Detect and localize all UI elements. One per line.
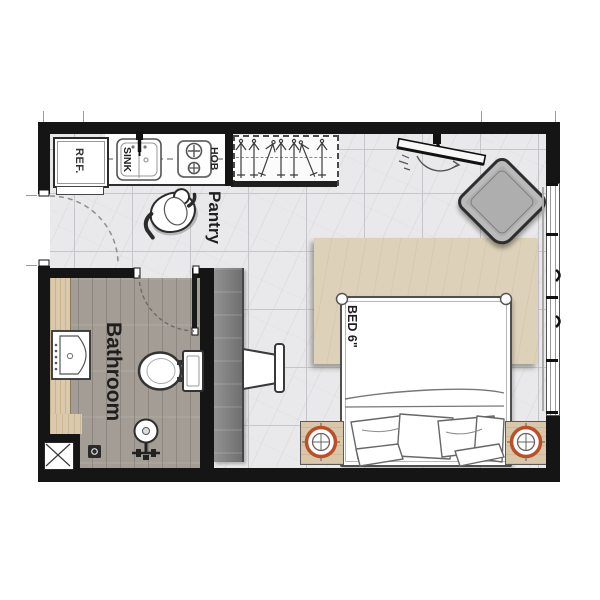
wall-top [38, 122, 560, 134]
bathroom-wall [200, 268, 214, 468]
hob-label: HOB [206, 141, 222, 177]
wardrobe-rail [236, 157, 332, 158]
wall-pier [225, 134, 233, 186]
wall-bottom [38, 468, 560, 482]
window-mullion [546, 296, 558, 299]
window-icon [546, 183, 560, 416]
floor-plan: REF. SINK HOB Pantry Bathroom BED 6" [0, 0, 600, 600]
pantry-label: Pantry [203, 184, 225, 250]
wall-right [546, 411, 560, 482]
bathroom-wall [50, 268, 138, 278]
dimension-tick [26, 195, 37, 196]
dimension-tick [555, 111, 556, 122]
refrigerator-label: REF. [53, 137, 105, 184]
bed-icon [340, 296, 512, 467]
nightstand-lamp-icon [300, 421, 344, 465]
bathroom-label: Bathroom [100, 324, 126, 419]
window-mullion [546, 411, 558, 414]
dimension-tick [481, 111, 482, 122]
dimension-tick [43, 111, 44, 122]
dimension-tick [26, 265, 37, 266]
desk-counter [214, 268, 244, 462]
sink-label: SINK [118, 139, 136, 181]
wall-left [38, 122, 50, 194]
wall-right [546, 122, 560, 186]
bathroom-door-leaf [192, 272, 197, 332]
nightstand-lamp-icon [505, 421, 549, 465]
wardrobe-front-edge [231, 181, 337, 187]
dimension-tick [83, 111, 84, 122]
service-shaft-icon [44, 442, 74, 470]
window-mullion [546, 233, 558, 236]
bathroom-counter [50, 278, 71, 414]
window-mullion [546, 183, 558, 186]
bed-label: BED 6" [343, 298, 361, 354]
refrigerator-door [56, 186, 104, 195]
wardrobe-icon [233, 135, 339, 186]
bathroom-counter-end [50, 414, 82, 434]
window-mullion [546, 359, 558, 362]
curtain-track [542, 187, 544, 411]
